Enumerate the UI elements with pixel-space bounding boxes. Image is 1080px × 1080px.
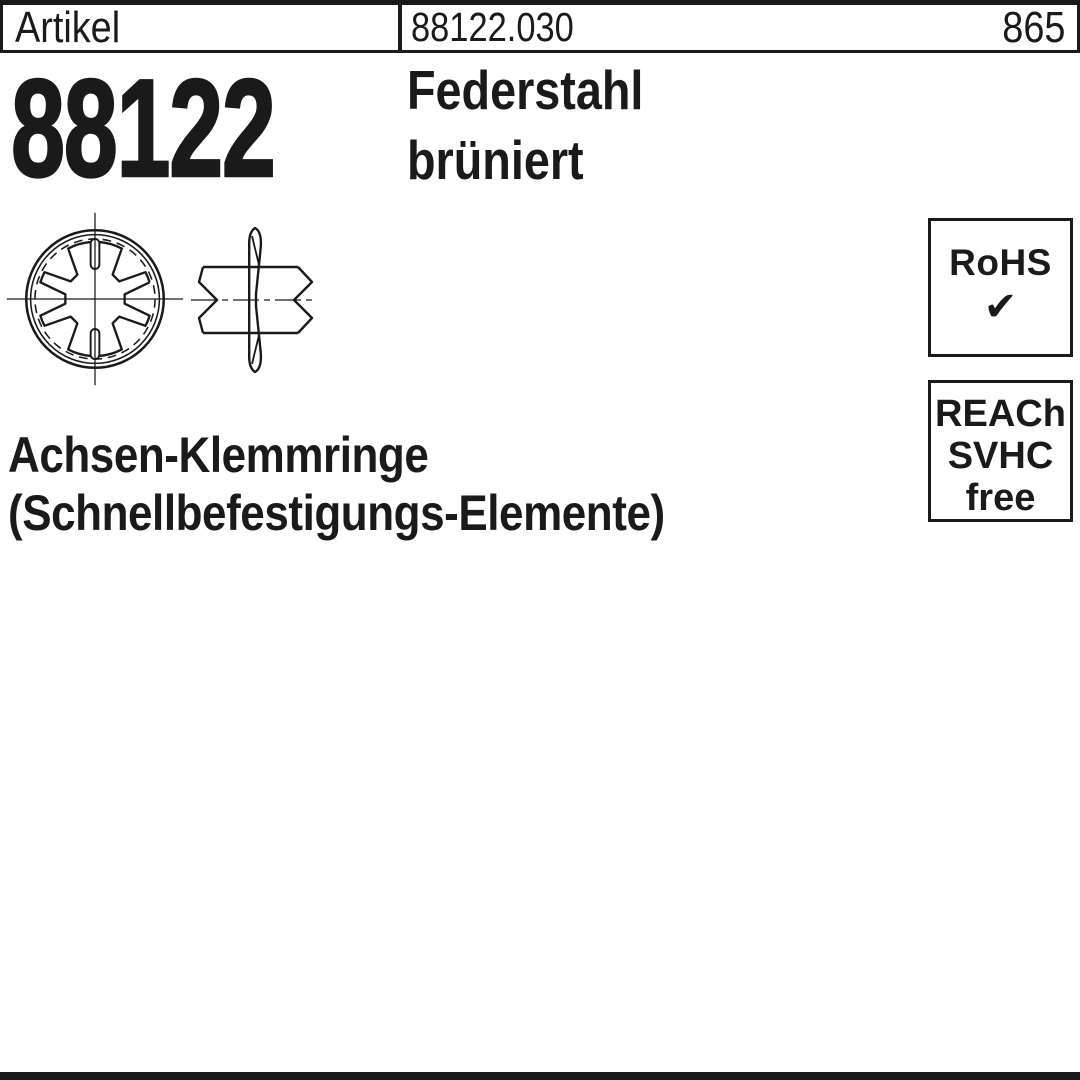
header-cell-divider (398, 5, 402, 50)
rohs-badge: RoHS ✔ (928, 218, 1073, 357)
side-view-drawing (183, 210, 323, 390)
reach-line-2: SVHC (931, 435, 1070, 477)
header-page-number: 865 (1002, 5, 1065, 50)
header-bar: Artikel 88122.030 865 (0, 0, 1080, 53)
product-title-line-2: (Schnellbefestigungs-Elemente) (8, 484, 665, 542)
material-line-2: brüniert (407, 125, 643, 195)
series-number: 88122 (11, 59, 275, 198)
material-spec: Federstahl brüniert (407, 55, 685, 195)
washer-bottom-inner-edge (252, 333, 260, 364)
washer-top-inner-edge (252, 236, 260, 267)
check-icon: ✔ (931, 285, 1070, 329)
reach-line-1: REACh (931, 393, 1070, 435)
reach-badge: REACh SVHC free (928, 380, 1073, 522)
header-article-number: 88122.030 (411, 5, 574, 50)
product-title-line-1: Achsen-Klemmringe (8, 426, 665, 484)
reach-line-3: free (931, 477, 1070, 519)
rohs-label: RoHS (931, 243, 1070, 283)
header-artikel-label: Artikel (15, 5, 120, 50)
front-view-drawing (3, 207, 187, 391)
product-title: Achsen-Klemmringe (Schnellbefestigungs-E… (8, 426, 754, 542)
material-line-1: Federstahl (407, 55, 643, 125)
catalog-page: Artikel 88122.030 865 88122 Federstahl b… (0, 0, 1080, 1080)
bottom-bar (0, 1072, 1080, 1080)
